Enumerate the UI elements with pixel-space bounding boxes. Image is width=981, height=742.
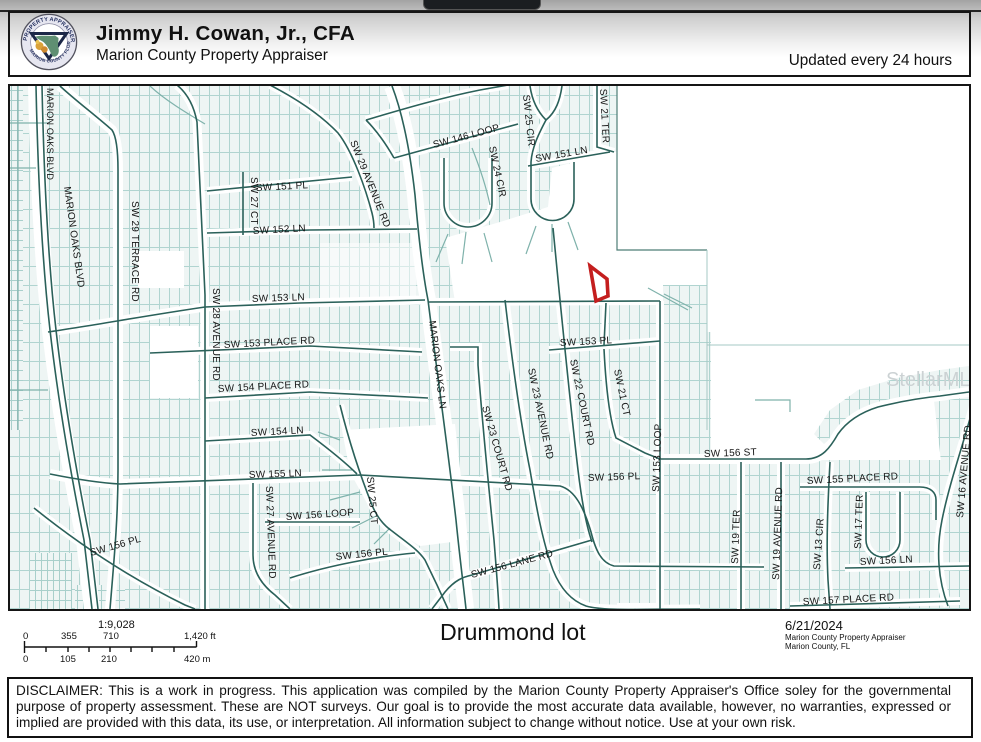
svg-text:SW 17 TER: SW 17 TER: [853, 494, 866, 549]
svg-text:SW 28 AVENUE RD: SW 28 AVENUE RD: [210, 288, 221, 381]
svg-text:SW 156 PL: SW 156 PL: [588, 471, 641, 484]
svg-text:SW 155 LN: SW 155 LN: [249, 468, 302, 481]
svg-text:MARION OAKS BLVD: MARION OAKS BLVD: [45, 88, 55, 180]
svg-text:SW 29 TERRACE RD: SW 29 TERRACE RD: [129, 201, 140, 302]
svg-text:SW 156 ST: SW 156 ST: [704, 447, 757, 460]
svg-text:SW 19 TER: SW 19 TER: [730, 509, 743, 564]
svg-text:StellarMLS: StellarMLS: [886, 369, 969, 391]
svg-text:SW 153 LN: SW 153 LN: [252, 292, 305, 305]
